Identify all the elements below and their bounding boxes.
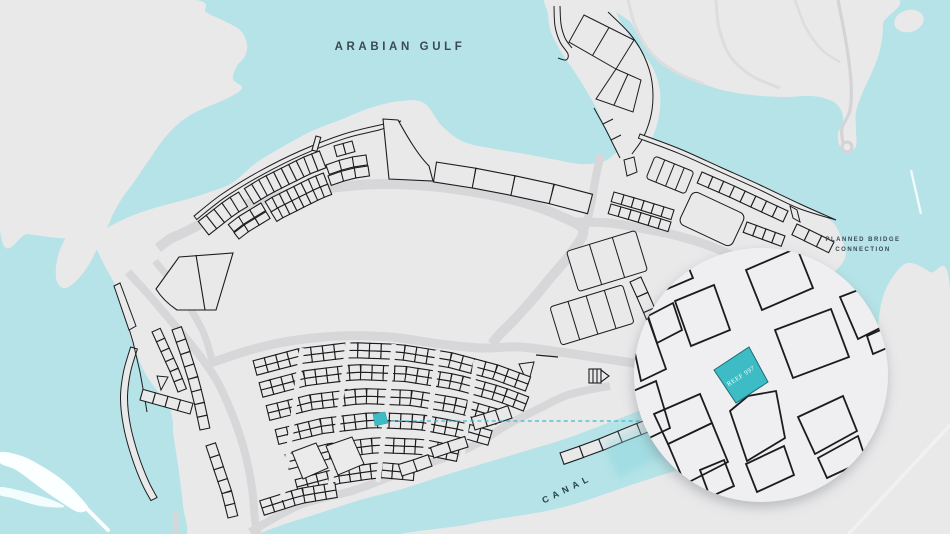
- svg-text:PLANNED BRIDGE: PLANNED BRIDGE: [825, 237, 900, 243]
- svg-text:CONNECTION: CONNECTION: [835, 247, 890, 253]
- svg-text:ARABIAN GULF: ARABIAN GULF: [335, 41, 466, 53]
